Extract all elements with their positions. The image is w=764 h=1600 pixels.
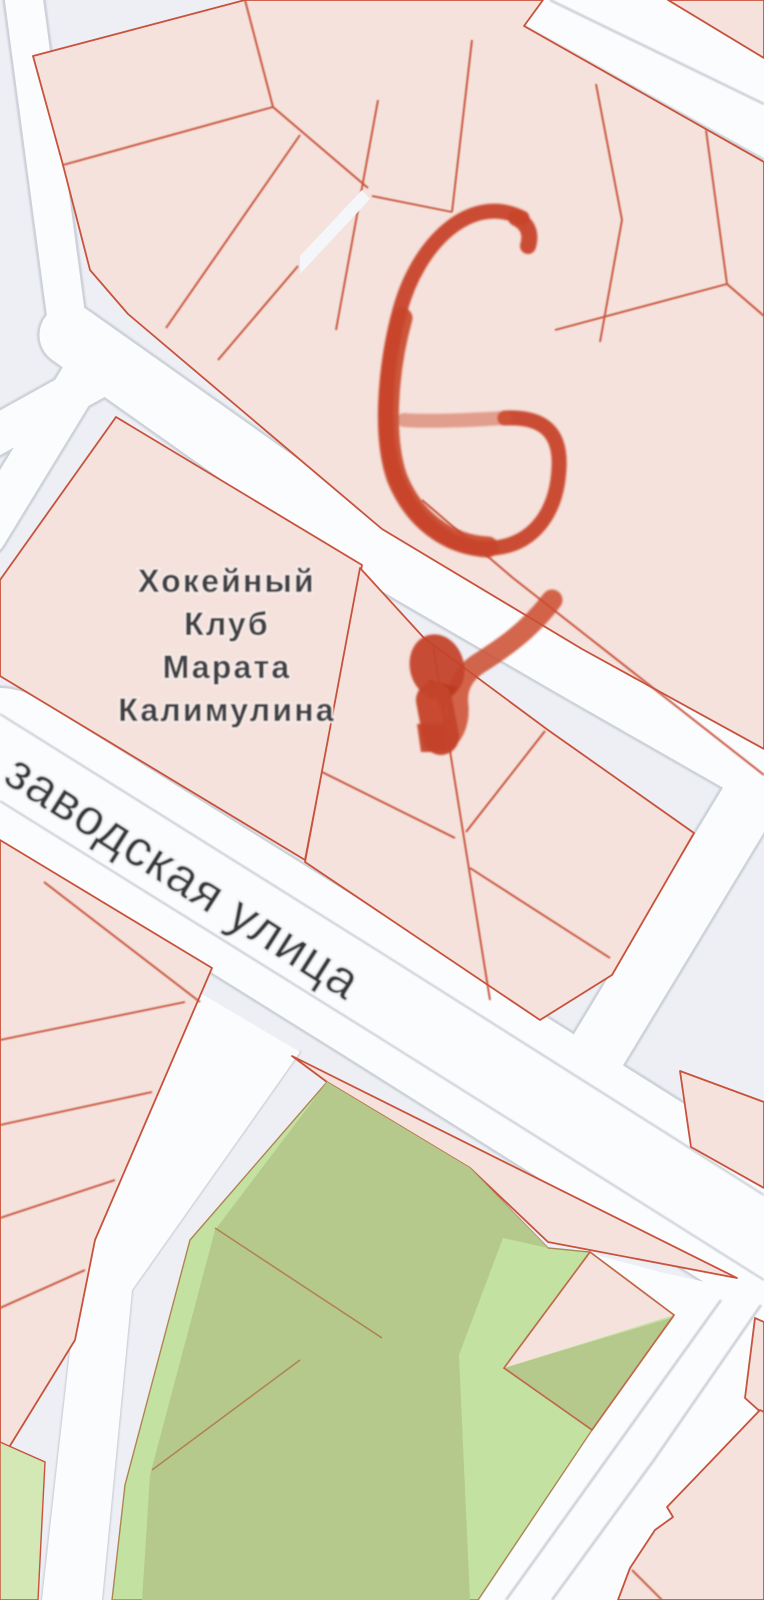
svg-text:Клуб: Клуб — [184, 606, 270, 642]
svg-text:Марата: Марата — [163, 649, 292, 685]
svg-text:Калимулина: Калимулина — [118, 692, 335, 728]
svg-text:Хокейный: Хокейный — [138, 563, 316, 599]
